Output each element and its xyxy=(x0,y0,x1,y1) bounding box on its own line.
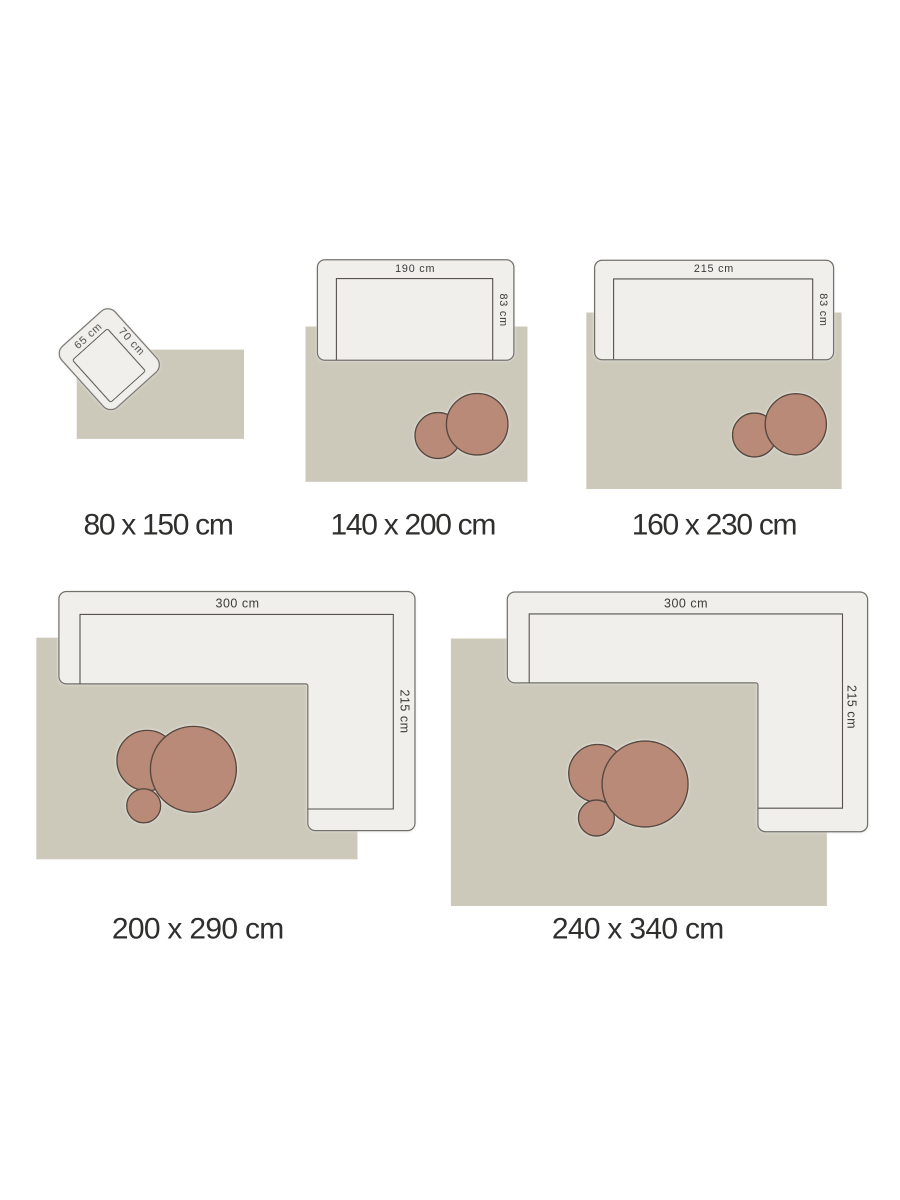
svg-text:215 cm: 215 cm xyxy=(694,263,734,275)
svg-text:80 x 150 cm: 80 x 150 cm xyxy=(83,509,232,542)
svg-text:83 cm: 83 cm xyxy=(817,293,829,326)
svg-text:215 cm: 215 cm xyxy=(397,690,411,734)
svg-text:300 cm: 300 cm xyxy=(664,596,708,610)
svg-text:83 cm: 83 cm xyxy=(497,293,509,326)
svg-text:240 x 340 cm: 240 x 340 cm xyxy=(552,913,724,946)
svg-text:200 x 290 cm: 200 x 290 cm xyxy=(112,913,284,946)
svg-text:140 x 200 cm: 140 x 200 cm xyxy=(331,509,496,542)
svg-text:190 cm: 190 cm xyxy=(395,263,435,275)
svg-text:215 cm: 215 cm xyxy=(845,685,859,729)
svg-text:300 cm: 300 cm xyxy=(216,596,260,610)
svg-text:160 x 230 cm: 160 x 230 cm xyxy=(632,509,797,542)
